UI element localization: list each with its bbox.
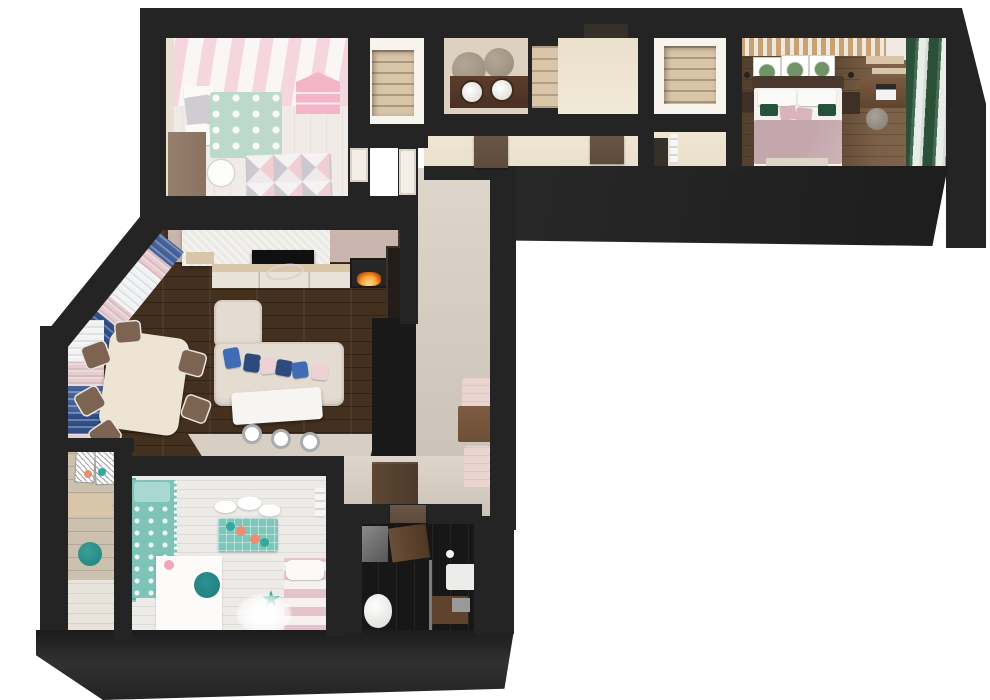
partition-balcony-kids2: [114, 444, 132, 640]
partition-bath2-left: [340, 516, 362, 634]
radiator: [315, 488, 325, 518]
sofa-pillow-blue-2: [291, 361, 309, 379]
floor-plan-scene: [0, 0, 990, 700]
corridor-wardrobe: [372, 462, 418, 506]
partition-closet2-bottom: [652, 114, 728, 132]
wall-bottom-face: [36, 630, 514, 700]
pink-pouf-cabinet-2: [464, 446, 492, 488]
door-hall-living: [399, 149, 416, 195]
sofa-pillow-blue-1: [222, 347, 241, 369]
bed-canopy: [236, 594, 292, 634]
wall-left-lower: [40, 326, 68, 646]
bar-stool-3: [300, 432, 320, 452]
bedroom-door-recess: [654, 138, 668, 168]
door-bathroom2: [390, 505, 426, 523]
pink-pillow-1: [779, 105, 797, 121]
closet1-shelves: [372, 50, 414, 116]
wall-sconce-right: [848, 72, 854, 78]
mint-cloud-blanket: [210, 92, 282, 158]
green-pillow-left: [760, 104, 778, 116]
mat-star-1: [226, 522, 235, 531]
closet2-shelves: [664, 46, 716, 104]
teal-pouf: [78, 542, 102, 566]
cloud-shelves: [212, 496, 280, 520]
radiator: [670, 134, 678, 164]
round-sink-2: [492, 80, 512, 100]
bar-table: [231, 387, 323, 425]
partition-balcony-top: [44, 438, 134, 452]
dollhouse-shelf: [296, 82, 340, 114]
teal-chair: [194, 572, 220, 598]
laptop: [876, 84, 896, 100]
partition-closet1-bottom: [348, 124, 428, 148]
wall-hung-sink: [446, 564, 476, 590]
towel: [452, 598, 470, 612]
green-curtains: [906, 36, 948, 168]
mat-star-4: [260, 538, 269, 547]
kitchen-block: [372, 318, 420, 462]
nightstand-right: [842, 92, 860, 114]
sofa-pillow-blush-2: [311, 363, 329, 381]
green-pillow-right: [818, 104, 836, 116]
wood-shelf-2: [872, 68, 908, 74]
partition-living-top: [150, 196, 418, 230]
partition-entry-closet2: [638, 8, 654, 170]
round-sink-1: [462, 82, 482, 102]
wall-right: [946, 8, 986, 248]
sofa-pillow-navy-1: [243, 353, 261, 373]
wall-sconce-left: [744, 72, 750, 78]
wall-art-1: [75, 452, 95, 483]
door-hall-2: [590, 136, 624, 164]
bed2-pillows: [286, 560, 324, 580]
bathroom2-mirror: [362, 526, 388, 562]
bar-stool-2: [271, 429, 291, 449]
paper-roll: [446, 550, 454, 558]
door-hall-1: [474, 136, 508, 168]
partition-bath2-right: [474, 516, 514, 634]
wall-left-upper: [140, 8, 166, 220]
kids1-chair: [208, 160, 234, 186]
fireplace-flame: [357, 272, 381, 286]
partition-kids1-closet1: [348, 8, 370, 220]
partition-closet2-bedroom: [726, 24, 742, 170]
coral-star-pillow: [84, 470, 92, 478]
bath-shelf-niche: [532, 46, 558, 108]
dining-chair-4: [115, 321, 141, 343]
toilet: [364, 594, 392, 628]
bar-stool-1: [242, 424, 262, 444]
sofa-pillow-navy-2: [275, 359, 294, 378]
wall-corridor-right: [490, 166, 516, 530]
wall-art-2: [95, 452, 114, 485]
teal-star-pillow: [98, 468, 106, 476]
partition-living-right: [400, 228, 418, 324]
wood-shelf-1: [866, 56, 904, 64]
open-door: [388, 524, 430, 563]
entry-door: [584, 24, 628, 38]
teal-bed-pillow: [134, 482, 170, 502]
kids1-desk: [168, 132, 206, 206]
sofa-chaise: [214, 300, 262, 348]
partition-living-kids2: [114, 456, 342, 476]
round-mirror-2: [484, 48, 514, 78]
door-kids1: [350, 148, 368, 182]
wall-face-under-arm: [502, 166, 948, 246]
desk-stool: [866, 108, 888, 130]
floating-shelf: [186, 252, 214, 264]
mat-star-2: [236, 526, 246, 536]
pink-lamp: [164, 560, 174, 570]
mat-star-3: [250, 534, 260, 544]
